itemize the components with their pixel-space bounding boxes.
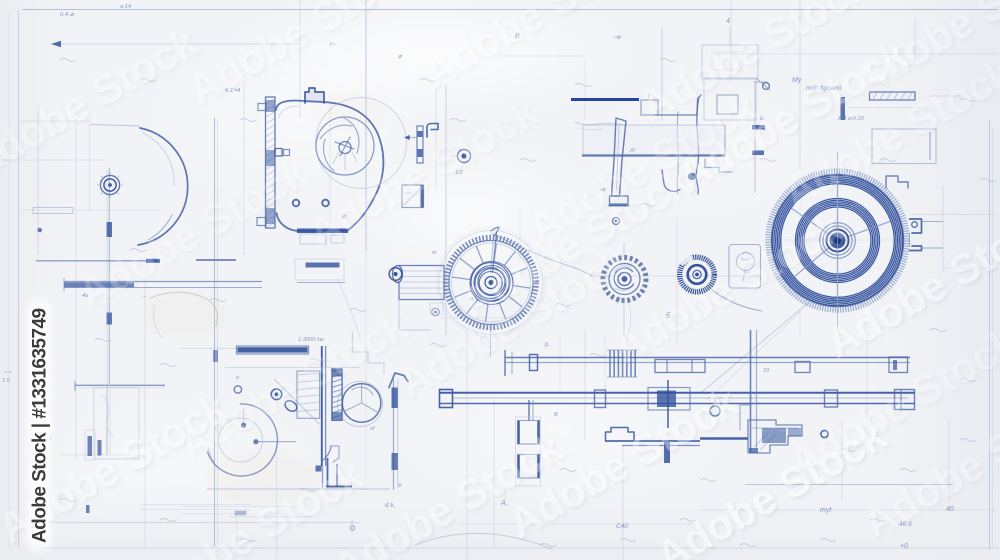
svg-text:y°: y° [616,298,623,304]
svg-text:n.4 ⌀: n.4 ⌀ [60,12,75,18]
svg-text:p.: p. [544,342,550,348]
svg-text:~w: ~w [613,35,622,41]
svg-text:+0: +0 [900,543,908,550]
svg-text:a-14: a-14 [120,4,131,10]
svg-text:nf: nf [370,426,375,432]
svg-text:myf: myf [820,507,832,514]
svg-text:1.5: 1.5 [2,378,11,384]
svg-text:...: ... [142,293,147,299]
svg-text:m: m [432,250,437,256]
svg-text:10: 10 [763,368,770,374]
svg-text:C40: C40 [616,523,628,530]
svg-text:k: k [885,200,888,206]
svg-text:o: o [236,375,239,381]
svg-text:B: B [554,412,558,418]
svg-text:d k,: d k, [385,502,396,509]
svg-text:4: 4 [726,18,730,25]
svg-text:Adobe Stock | #1331635749: Adobe Stock | #1331635749 [30,309,51,543]
